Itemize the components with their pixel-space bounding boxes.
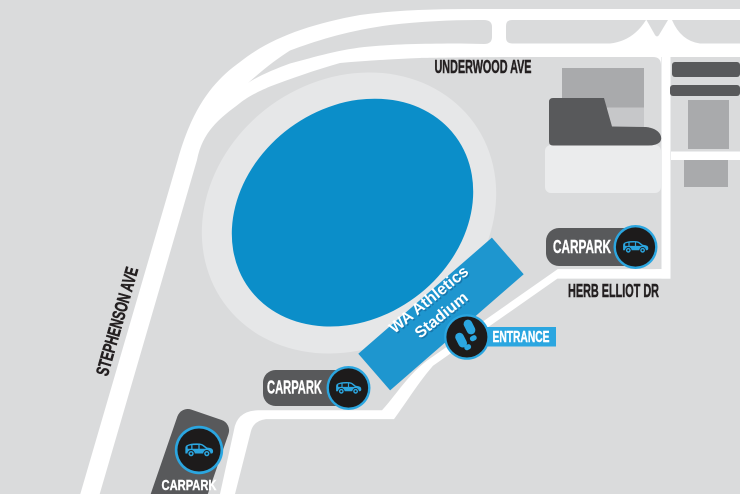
svg-text:UNDERWOOD AVE: UNDERWOOD AVE [435, 57, 532, 77]
svg-text:HERB ELLIOT DR: HERB ELLIOT DR [568, 281, 659, 301]
svg-text:CARPARK: CARPARK [162, 477, 217, 494]
svg-text:CARPARK: CARPARK [553, 236, 611, 257]
svg-text:CARPARK: CARPARK [267, 378, 322, 398]
svg-text:ENTRANCE: ENTRANCE [493, 329, 550, 346]
